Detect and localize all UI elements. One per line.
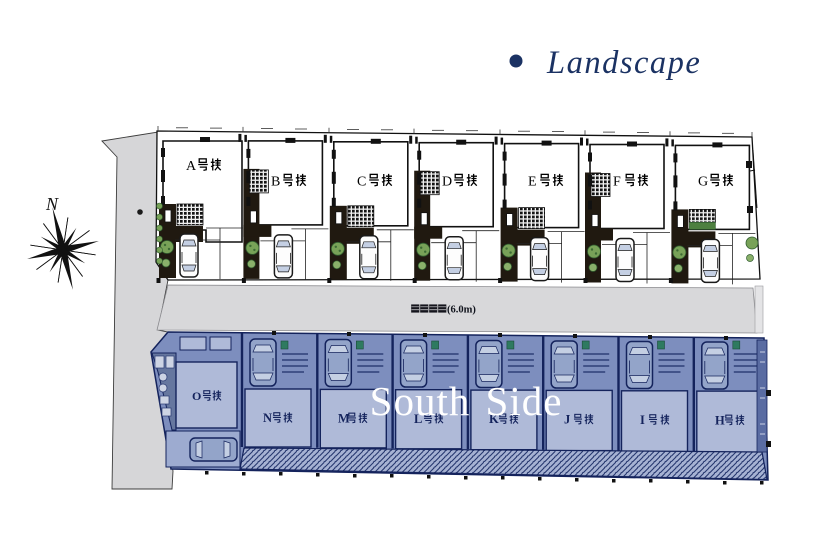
svg-text:N: N — [45, 194, 59, 214]
svg-text:A: A — [186, 159, 197, 174]
svg-text:D: D — [442, 175, 452, 190]
svg-text:G: G — [698, 175, 708, 190]
svg-text:C: C — [357, 175, 366, 190]
svg-text:O: O — [192, 389, 201, 403]
svg-text:H: H — [715, 413, 725, 427]
svg-text:F: F — [613, 175, 621, 190]
svg-text:(6.0m): (6.0m) — [447, 305, 476, 316]
svg-text:Landscape: Landscape — [546, 45, 701, 81]
svg-text:SouthSide: SouthSide — [370, 378, 563, 424]
svg-text:B: B — [271, 175, 280, 190]
svg-text:N: N — [263, 411, 272, 425]
svg-text:I: I — [640, 413, 645, 427]
svg-text:J: J — [564, 413, 570, 427]
svg-text:E: E — [528, 175, 537, 190]
